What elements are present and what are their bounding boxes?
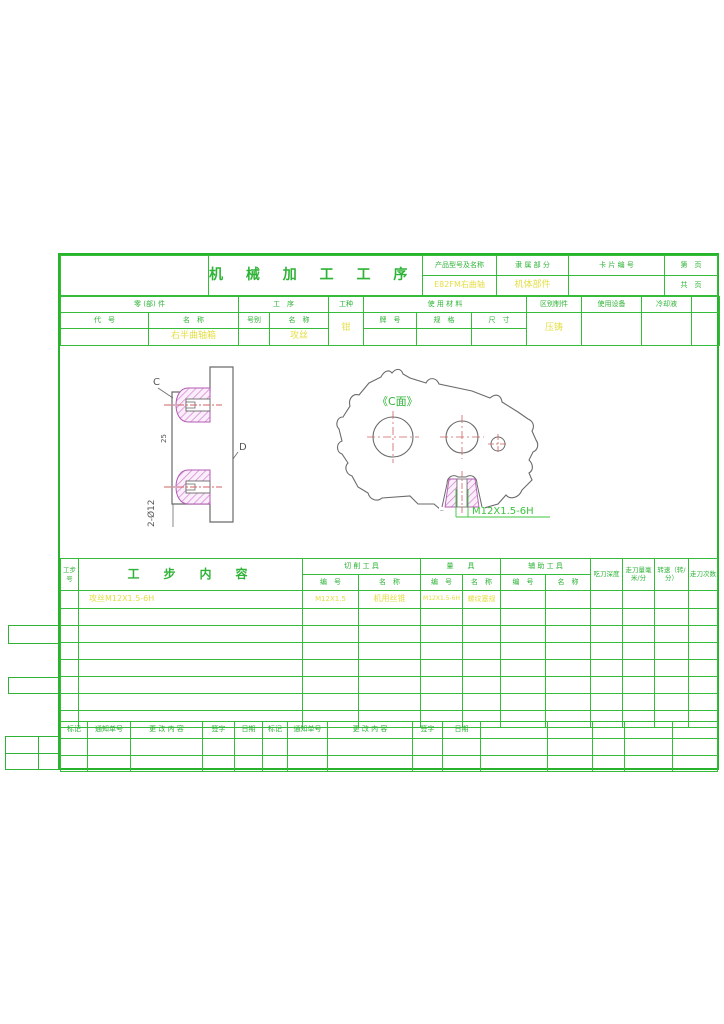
card-no-label: 卡 片 编 号 <box>569 256 665 276</box>
cell <box>359 643 421 660</box>
cell <box>501 609 546 626</box>
view-label: 《C面》 <box>377 395 418 408</box>
cell <box>655 626 689 643</box>
cell <box>263 739 288 756</box>
cell <box>303 660 359 677</box>
steps-header-row-1: 工步号 工 步 内 容 切 削 工 具 量 具 辅 助 工 具 吃刀深度 走刀量… <box>61 559 718 575</box>
drawing-zone: C D 2-Ø12 25 《C面》 <box>60 341 717 558</box>
name-label: 名 称 <box>270 313 329 329</box>
change-empty-row <box>61 739 718 756</box>
cell <box>623 660 655 677</box>
belong-value: 机体部件 <box>497 276 569 296</box>
product-value: E82FM右曲轴 <box>423 276 497 296</box>
title-block-mid: 零 (部) 件 工 序 工种 使 用 材 料 区别制件 使用设备 冷却液 代 号… <box>60 296 720 346</box>
cell <box>421 643 463 660</box>
card-no-value <box>569 276 665 296</box>
work-steps-table: 工步号 工 步 内 容 切 削 工 具 量 具 辅 助 工 具 吃刀深度 走刀量… <box>60 558 718 728</box>
cell <box>546 694 591 711</box>
aux-name-header: 名 称 <box>546 575 591 591</box>
cell <box>79 660 303 677</box>
gauge-no-value: M12X1.5-6H <box>421 591 463 609</box>
corner-grid <box>5 736 59 770</box>
cell <box>88 739 131 756</box>
card-title: 机 械 加 工 工 序 卡 片 <box>209 256 423 296</box>
change-content-header: 更 改 内 容 <box>328 722 413 739</box>
cell <box>591 609 623 626</box>
depth-header: 吃刀深度 <box>591 559 623 591</box>
cell <box>463 677 501 694</box>
cell <box>655 677 689 694</box>
title-block-top: 机 械 加 工 工 序 卡 片 产品型号及名称 隶 属 部 分 卡 片 编 号 … <box>60 255 718 296</box>
cell <box>61 756 88 772</box>
cell <box>79 609 303 626</box>
cell <box>288 739 328 756</box>
size-label: 尺 寸 <box>472 313 527 329</box>
gauge-no-header: 编 号 <box>421 575 463 591</box>
label-d: D <box>239 442 247 453</box>
leader-c <box>158 388 173 398</box>
speed-header: 转速（转/分） <box>655 559 689 591</box>
cell <box>359 677 421 694</box>
cell <box>625 756 673 772</box>
material-label: 使 用 材 料 <box>364 297 527 313</box>
cell <box>501 660 546 677</box>
cell <box>546 591 591 609</box>
cell <box>501 626 546 643</box>
cell <box>591 660 623 677</box>
cell <box>591 694 623 711</box>
step-empty-row <box>61 694 718 711</box>
thread-callout-text: M12X1.5-6H <box>472 506 534 517</box>
cell <box>61 739 88 756</box>
cell <box>421 660 463 677</box>
cell <box>591 643 623 660</box>
cell <box>413 739 443 756</box>
cell <box>328 756 413 772</box>
cut-no-header: 编 号 <box>303 575 359 591</box>
cell <box>79 643 303 660</box>
cell <box>546 643 591 660</box>
cell <box>689 660 718 677</box>
cell <box>288 756 328 772</box>
spec-label: 规 格 <box>417 313 472 329</box>
cell <box>79 694 303 711</box>
mark-header: 标记 <box>61 722 88 739</box>
cell <box>689 626 718 643</box>
c-face-view-drawing: 《C面》 M12X1.5-6H <box>322 367 554 532</box>
cell <box>303 626 359 643</box>
mark-header: 标记 <box>263 722 288 739</box>
belong-label: 隶 属 部 分 <box>497 256 569 276</box>
process-card-sheet: 机 械 加 工 工 序 卡 片 产品型号及名称 隶 属 部 分 卡 片 编 号 … <box>58 253 719 770</box>
cell <box>131 756 203 772</box>
step-empty-row <box>61 643 718 660</box>
feed-header: 走刀量毫米/分 <box>623 559 655 591</box>
cell <box>88 756 131 772</box>
label-c: C <box>153 377 160 388</box>
content-header: 工 步 内 容 <box>79 559 303 591</box>
cell <box>463 609 501 626</box>
cell <box>61 694 79 711</box>
cell <box>79 626 303 643</box>
change-header-row: 标记 通知单号 更 改 内 容 签字 日期 标记 通知单号 更 改 内 容 签字… <box>61 722 718 739</box>
gauge-name-header: 名 称 <box>463 575 501 591</box>
leader-d <box>233 452 238 459</box>
dim-depth-text: 25 <box>160 434 168 443</box>
step-empty-row <box>61 626 718 643</box>
cell <box>689 694 718 711</box>
cell <box>673 756 718 772</box>
change-record-table: 标记 通知单号 更 改 内 容 签字 日期 标记 通知单号 更 改 内 容 签字… <box>60 721 718 772</box>
cell <box>593 739 625 756</box>
sub-header-row: 代 号 名 称 号别 名 称 钳 牌 号 规 格 尺 寸 压铸 <box>61 313 720 329</box>
step-empty-row <box>61 660 718 677</box>
step-content-value: 攻丝M12X1.5-6H <box>79 591 303 609</box>
cell <box>61 591 79 609</box>
change-content-header: 更 改 内 容 <box>131 722 203 739</box>
sign-header: 签字 <box>413 722 443 739</box>
binding-tab-1 <box>8 625 59 644</box>
cell <box>413 756 443 772</box>
cell <box>655 694 689 711</box>
binding-tab-2 <box>8 677 59 694</box>
coolant-label: 冷却液 <box>642 297 692 313</box>
cell <box>591 626 623 643</box>
cell <box>546 626 591 643</box>
cell <box>303 609 359 626</box>
aux-tool-header: 辅 助 工 具 <box>501 559 591 575</box>
cell <box>481 756 548 772</box>
distinguish-label: 区别制件 <box>527 297 582 313</box>
cell <box>421 609 463 626</box>
cell <box>263 756 288 772</box>
name-label: 名 称 <box>149 313 239 329</box>
cut-name-header: 名 称 <box>359 575 421 591</box>
section-view-drawing: C D 2-Ø12 25 <box>142 357 307 535</box>
cell <box>131 739 203 756</box>
cell <box>625 722 673 739</box>
cell <box>303 643 359 660</box>
cell <box>673 739 718 756</box>
cell <box>655 660 689 677</box>
cell <box>203 756 235 772</box>
cell <box>463 660 501 677</box>
cell <box>623 609 655 626</box>
cell <box>421 626 463 643</box>
cell <box>593 722 625 739</box>
cell <box>689 609 718 626</box>
step-empty-row <box>61 609 718 626</box>
cell <box>548 722 593 739</box>
cell <box>501 677 546 694</box>
cell <box>546 609 591 626</box>
cell <box>359 660 421 677</box>
cell <box>673 722 718 739</box>
cell <box>443 739 481 756</box>
code-label: 代 号 <box>61 313 149 329</box>
cell <box>623 591 655 609</box>
cell <box>235 739 263 756</box>
step-data-row: 攻丝M12X1.5-6H M12X1.5 机用丝锥 M12X1.5-6H 螺纹塞… <box>61 591 718 609</box>
part-label: 零 (部) 件 <box>61 297 239 313</box>
corner-grid-hline <box>6 753 58 754</box>
cell <box>79 677 303 694</box>
cell <box>593 756 625 772</box>
crankcase-outline <box>337 369 538 510</box>
cell <box>203 739 235 756</box>
cell <box>548 756 593 772</box>
brand-label: 牌 号 <box>364 313 417 329</box>
equipment-label: 使用设备 <box>582 297 642 313</box>
cell <box>548 739 593 756</box>
corner-grid-vline <box>38 737 39 769</box>
blank-header-cell <box>692 297 720 313</box>
date-header: 日期 <box>443 722 481 739</box>
cell <box>623 677 655 694</box>
cut-no-value: M12X1.5 <box>303 591 359 609</box>
cell <box>501 694 546 711</box>
cutting-tool-header: 切 削 工 具 <box>303 559 421 575</box>
cell <box>61 643 79 660</box>
process-label: 工 序 <box>239 297 329 313</box>
cell <box>625 739 673 756</box>
cell <box>421 677 463 694</box>
step-no-header: 工步号 <box>61 559 79 591</box>
step-empty-row <box>61 677 718 694</box>
no-label: 号别 <box>239 313 270 329</box>
total-page-label: 共 页 <box>665 276 718 296</box>
notice-header: 通知单号 <box>288 722 328 739</box>
cell <box>359 609 421 626</box>
cell <box>546 677 591 694</box>
cell <box>591 591 623 609</box>
cell <box>689 643 718 660</box>
cell <box>623 694 655 711</box>
page-label: 第 页 <box>665 256 718 276</box>
cell <box>591 677 623 694</box>
cell <box>463 626 501 643</box>
cell <box>481 739 548 756</box>
cut-name-value: 机用丝锥 <box>359 591 421 609</box>
cell <box>623 626 655 643</box>
cell <box>463 643 501 660</box>
product-label: 产品型号及名称 <box>423 256 497 276</box>
blank-corner-cell <box>61 256 209 296</box>
passes-header: 走刀次数 <box>689 559 718 591</box>
cell <box>61 677 79 694</box>
cell <box>421 694 463 711</box>
cell <box>623 643 655 660</box>
cell <box>655 591 689 609</box>
cell <box>328 739 413 756</box>
worktype-label: 工种 <box>329 297 364 313</box>
title-row-1: 机 械 加 工 工 序 卡 片 产品型号及名称 隶 属 部 分 卡 片 编 号 … <box>61 256 718 276</box>
cell <box>689 677 718 694</box>
cell <box>501 591 546 609</box>
cell <box>61 626 79 643</box>
cell <box>689 591 718 609</box>
cell <box>235 756 263 772</box>
group-header-row: 零 (部) 件 工 序 工种 使 用 材 料 区别制件 使用设备 冷却液 <box>61 297 720 313</box>
cell <box>481 722 548 739</box>
change-empty-row <box>61 756 718 772</box>
gauge-name-value: 螺纹塞规 <box>463 591 501 609</box>
notice-header: 通知单号 <box>88 722 131 739</box>
cell <box>359 626 421 643</box>
cell <box>501 643 546 660</box>
cell <box>359 694 421 711</box>
cell <box>303 677 359 694</box>
cell <box>303 694 359 711</box>
cell <box>546 660 591 677</box>
cell <box>61 660 79 677</box>
aux-no-header: 编 号 <box>501 575 546 591</box>
sign-header: 签字 <box>203 722 235 739</box>
gauge-header: 量 具 <box>421 559 501 575</box>
cell <box>655 609 689 626</box>
date-header: 日期 <box>235 722 263 739</box>
cell <box>443 756 481 772</box>
cell <box>61 609 79 626</box>
cell <box>655 643 689 660</box>
dim-holes-text: 2-Ø12 <box>146 499 157 527</box>
cell <box>463 694 501 711</box>
